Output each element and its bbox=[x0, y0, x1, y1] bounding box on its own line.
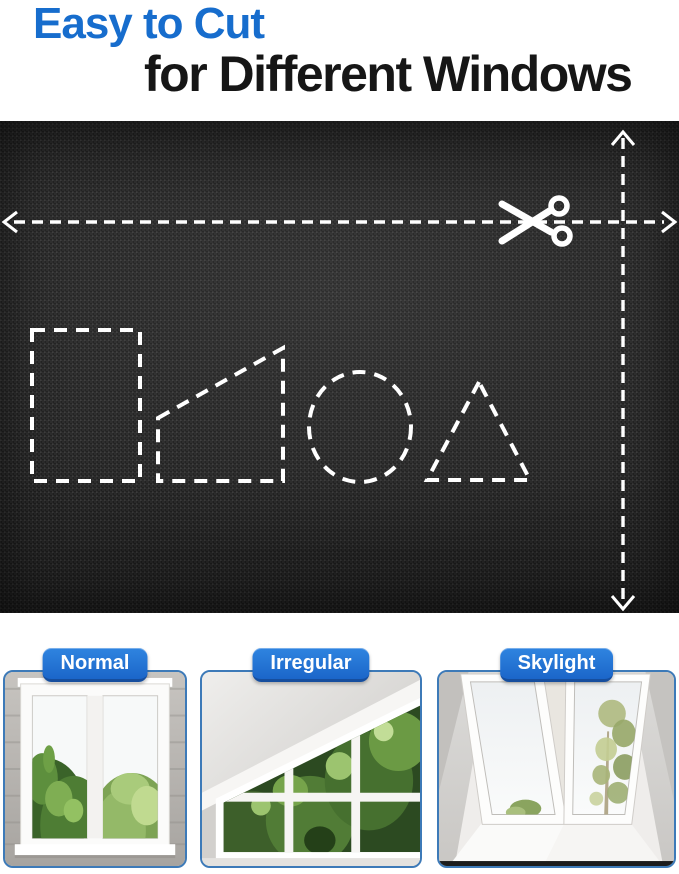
skylight-window-illustration bbox=[439, 672, 674, 866]
cut-guides-overlay bbox=[0, 121, 679, 613]
vertical-cut-arrow bbox=[612, 132, 634, 609]
card-label-pill: Skylight bbox=[500, 648, 614, 682]
card-label-pill: Normal bbox=[43, 648, 148, 682]
skylight-window-photo bbox=[437, 670, 676, 868]
normal-window-photo bbox=[3, 670, 187, 868]
card-label: Skylight bbox=[518, 652, 596, 674]
irregular-window-photo bbox=[200, 670, 422, 868]
fabric-panel bbox=[0, 121, 679, 613]
cut-shape-circle bbox=[309, 372, 411, 482]
irregular-window-illustration bbox=[202, 672, 420, 866]
card-label: Normal bbox=[61, 652, 130, 674]
horizontal-cut-arrow bbox=[4, 212, 675, 232]
window-card-irregular: Irregular bbox=[200, 648, 422, 868]
window-card-skylight: Skylight bbox=[437, 648, 676, 868]
window-card-normal: Normal bbox=[3, 648, 187, 868]
product-infographic: Easy to Cut for Different Windows bbox=[0, 0, 679, 874]
title-line2: for Different Windows bbox=[144, 48, 631, 101]
card-label-pill: Irregular bbox=[252, 648, 369, 682]
title-line1: Easy to Cut bbox=[33, 0, 264, 49]
cut-shape-rectangle bbox=[32, 330, 140, 481]
card-label: Irregular bbox=[270, 652, 351, 674]
cut-shape-trapezoid bbox=[158, 348, 283, 481]
cut-shape-triangle bbox=[427, 382, 530, 480]
normal-window-illustration bbox=[5, 672, 185, 866]
